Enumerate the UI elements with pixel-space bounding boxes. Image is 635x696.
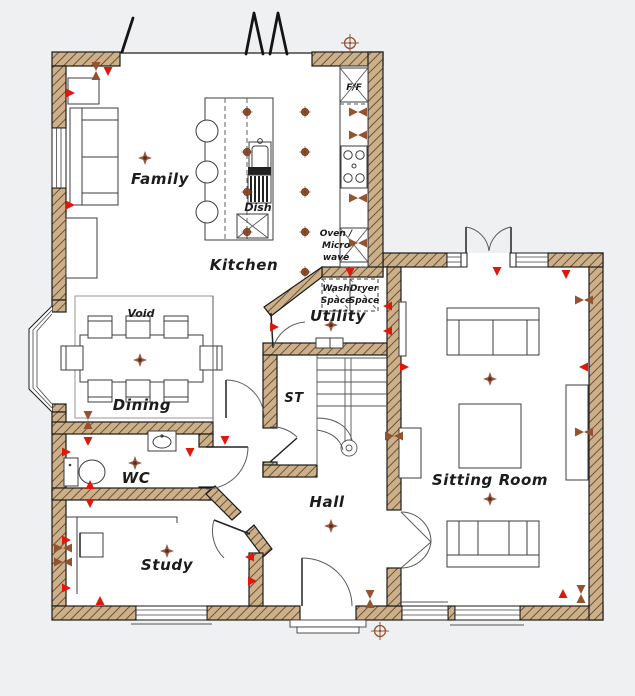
label-oven-2: Micro (322, 241, 350, 251)
sitting-window-north-right (516, 253, 548, 267)
stool (196, 120, 218, 142)
room-label-wc: WC (122, 469, 151, 487)
room-label-utility: Utility (310, 307, 367, 325)
floor-plan-page: Family Kitchen Dining Utility ST WC Hall… (0, 0, 635, 696)
label-oven-3: wave (323, 253, 349, 263)
desk-chair (80, 533, 103, 557)
room-label-store: ST (284, 391, 304, 406)
stool (196, 161, 218, 183)
coffee-table (459, 404, 521, 468)
floor-plan-svg: Family Kitchen Dining Utility ST WC Hall… (0, 0, 635, 696)
room-label-dining: Dining (113, 396, 171, 414)
sitting-sofa-south (447, 521, 539, 567)
room-label-hall: Hall (309, 493, 345, 511)
survey-marker-icon (371, 622, 389, 640)
label-dishwasher: Dish (244, 201, 271, 214)
porch-steps (290, 620, 366, 633)
label-oven-1: Oven / (320, 229, 353, 239)
french-doors-north (466, 227, 511, 253)
label-wash-2: Space (321, 296, 351, 306)
room-label-study: Study (141, 556, 194, 574)
label-dryer-2: Space (349, 296, 379, 306)
sitting-sofa-north (447, 308, 539, 355)
kitchen-island (196, 98, 273, 240)
stool (196, 201, 218, 223)
family-window (52, 128, 66, 188)
sitting-window-north-left (447, 253, 461, 267)
family-sofa (70, 108, 118, 205)
label-dryer-1: Dryer (350, 284, 379, 294)
radiator (399, 302, 406, 356)
study-window (131, 606, 212, 624)
sitting-window-south-right (450, 606, 524, 625)
label-void: Void (128, 307, 155, 320)
side-table (68, 78, 99, 104)
label-fridge-freezer: F/F (346, 83, 362, 93)
room-label-sitting: Sitting Room (432, 471, 548, 489)
utility-sink (316, 338, 343, 348)
survey-marker-icon (341, 34, 359, 52)
room-label-family: Family (131, 170, 190, 188)
wash-basin (148, 431, 176, 451)
break-marks (122, 13, 287, 54)
label-wash-1: Wash (322, 284, 349, 294)
room-label-kitchen: Kitchen (210, 256, 279, 274)
bay-window (29, 306, 52, 412)
dishwasher (248, 167, 271, 203)
toilet (64, 458, 105, 486)
console-cabinet (66, 218, 97, 278)
